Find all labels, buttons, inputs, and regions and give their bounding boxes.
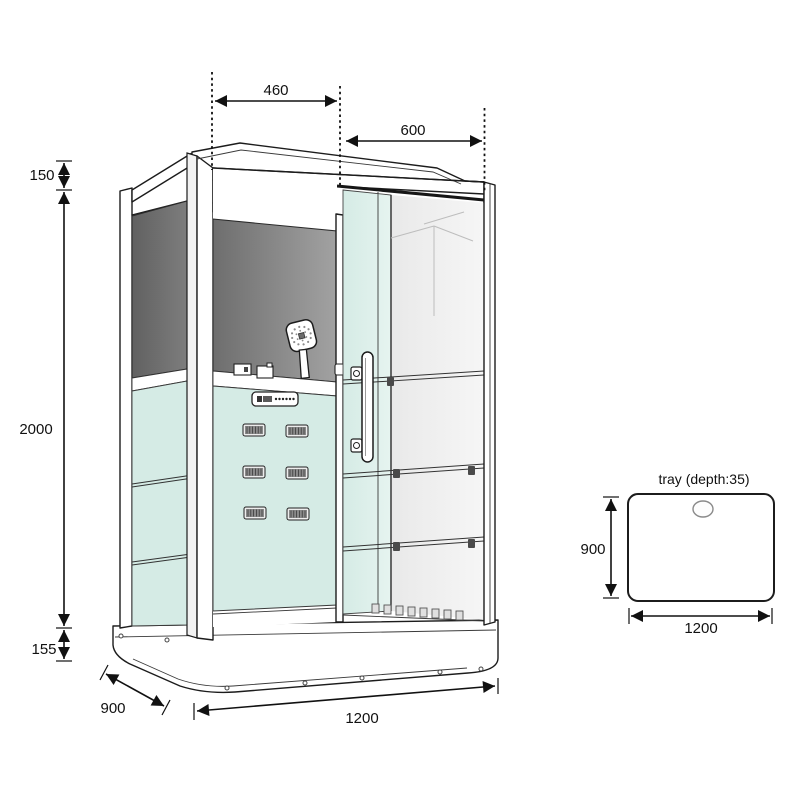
corner-post-side (187, 153, 197, 638)
left-back-mirror-panel (132, 201, 187, 378)
tray-dim-label-1200: 1200 (684, 620, 717, 637)
tray-top-view: tray (depth:35) 900 1200 (580, 471, 774, 637)
drain-hole (693, 501, 713, 517)
front-left-corner-post (187, 153, 213, 640)
control-panel (252, 392, 298, 406)
dim-top-left-width: 460 (215, 82, 337, 101)
left-glass-panel (132, 381, 187, 626)
left-outer-post (120, 188, 132, 628)
dim-left-height-chain: 150 2000 155 (19, 161, 72, 661)
dim-label-900: 900 (100, 700, 125, 717)
sliding-door-section (343, 190, 484, 621)
tray-title: tray (depth:35) (658, 471, 749, 487)
dim-label-600: 600 (400, 122, 425, 139)
back-wall-mirror-panel (213, 219, 337, 382)
front-right-post (484, 182, 495, 625)
left-top-rail (132, 153, 192, 202)
handle-bar (362, 352, 373, 462)
corner-post-front (197, 156, 213, 640)
back-glass-panel (213, 386, 337, 611)
shower-head-center (298, 332, 305, 339)
tray-dim-width: 1200 (629, 608, 772, 637)
base-tray (113, 620, 498, 692)
dim-label-460: 460 (263, 82, 288, 99)
control-display (257, 396, 262, 402)
dim-label-150: 150 (29, 167, 54, 184)
tray-dim-label-900: 900 (580, 541, 605, 558)
dim-label-155: 155 (31, 641, 56, 658)
dim-label-2000: 2000 (19, 421, 52, 438)
dim-label-1200: 1200 (345, 710, 378, 727)
fixed-panel-section (213, 168, 337, 627)
tray-dim-depth: 900 (580, 497, 619, 598)
shower-cabin (113, 143, 498, 692)
dim-top-right-width: 600 (346, 122, 482, 141)
technical-drawing-page: 460 600 150 2000 155 900 1200 tray (dept… (0, 0, 800, 800)
door-interior-view (391, 195, 484, 620)
shower-cabin-technical-drawing: 460 600 150 2000 155 900 1200 tray (dept… (0, 0, 800, 800)
